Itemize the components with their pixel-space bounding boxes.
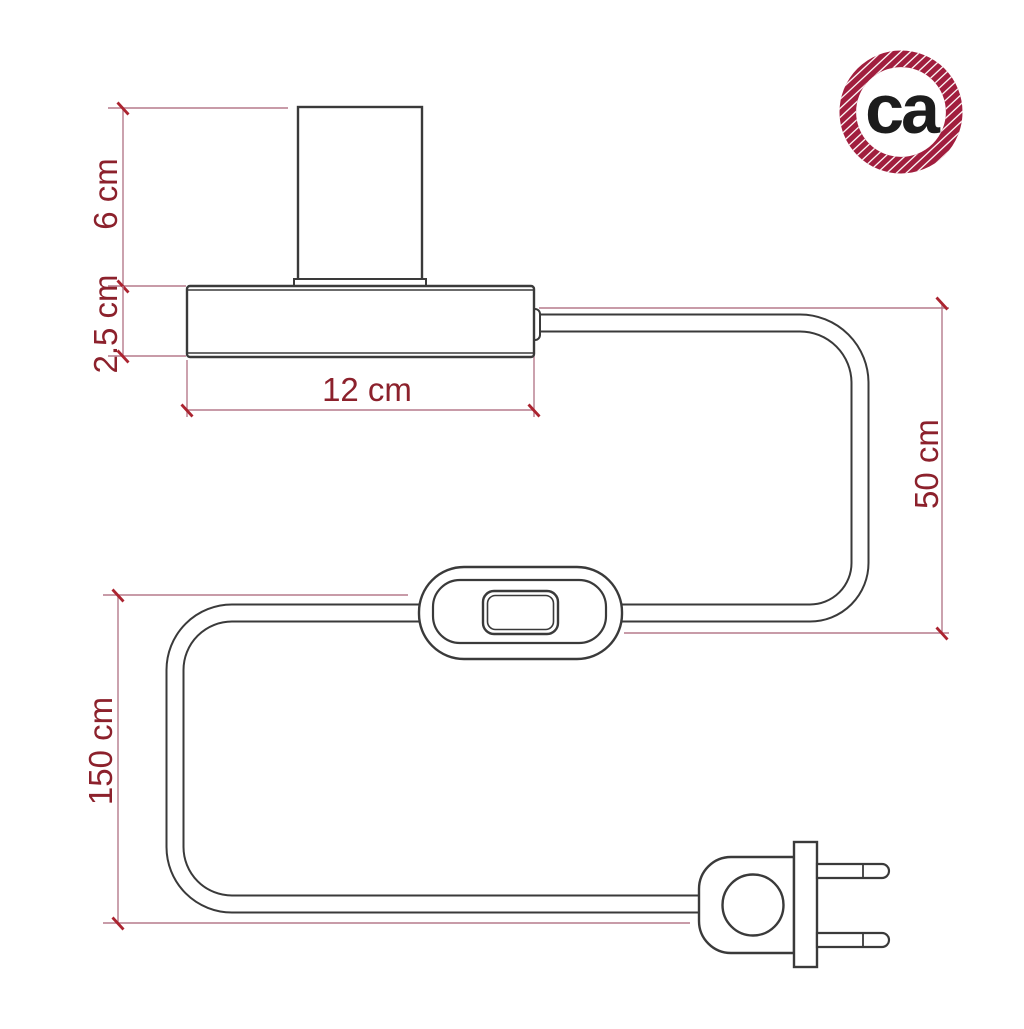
- svg-text:ca: ca: [865, 70, 941, 148]
- svg-text:150 cm: 150 cm: [82, 697, 119, 805]
- svg-text:6 cm: 6 cm: [87, 158, 124, 230]
- svg-text:12 cm: 12 cm: [322, 371, 412, 408]
- svg-text:2.5 cm: 2.5 cm: [87, 274, 124, 373]
- svg-text:50 cm: 50 cm: [908, 419, 945, 509]
